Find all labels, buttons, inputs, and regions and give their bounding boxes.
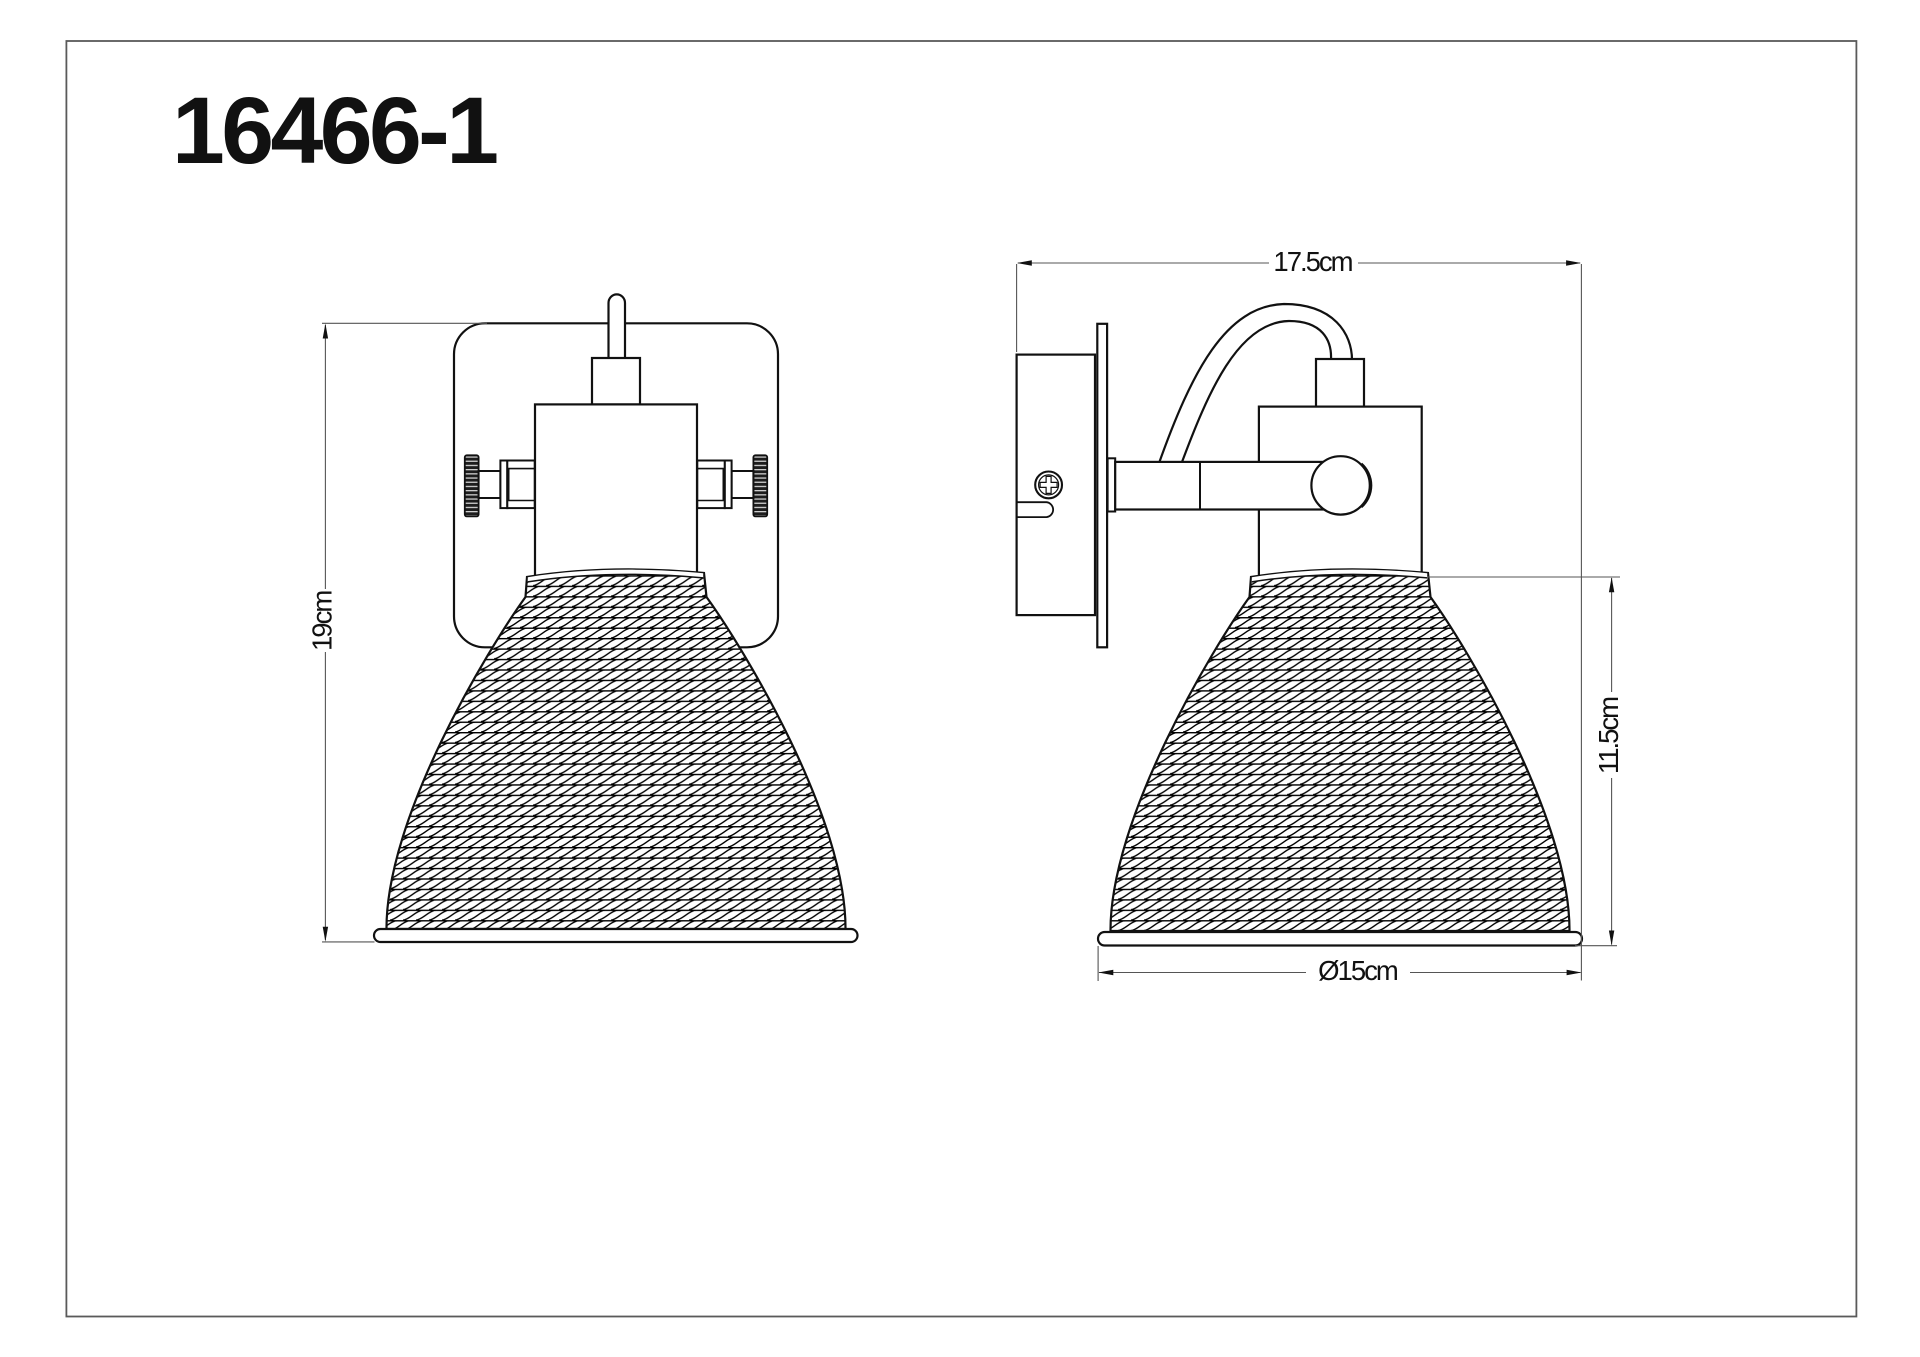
svg-text:Ø15cm: Ø15cm	[1318, 955, 1398, 986]
svg-text:16466-1: 16466-1	[172, 78, 497, 184]
svg-text:17.5cm: 17.5cm	[1273, 246, 1352, 277]
svg-text:11.5cm: 11.5cm	[1593, 697, 1624, 774]
svg-text:19cm: 19cm	[307, 591, 338, 651]
